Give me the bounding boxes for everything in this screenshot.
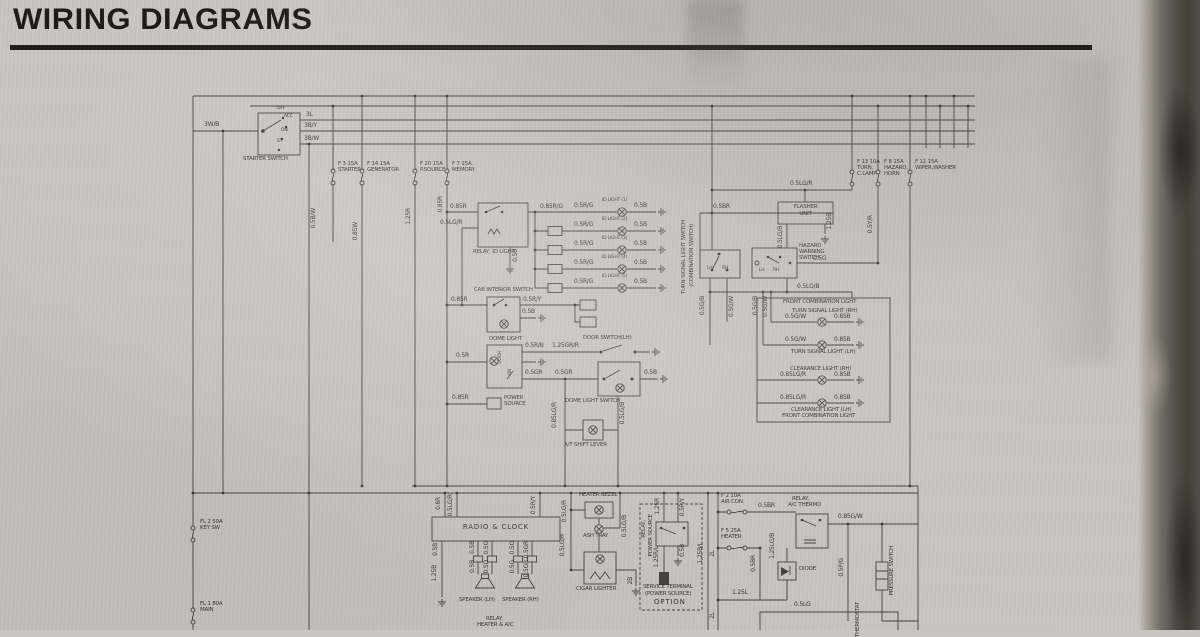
wire-label: 0.5G/W bbox=[729, 296, 735, 317]
wire-label: 1.25R bbox=[406, 208, 412, 225]
wire-label: 0.5B bbox=[513, 249, 519, 262]
wire-label: 0.85R bbox=[438, 196, 444, 213]
wire-label: 0.5R/G bbox=[574, 260, 593, 266]
wire-label: 0.85B bbox=[834, 337, 850, 343]
fuse-name: KEY SW bbox=[200, 526, 220, 532]
component-label: OPTION bbox=[654, 599, 686, 607]
wire-label: 2L bbox=[710, 550, 716, 557]
fuse-name: GENERATOR bbox=[367, 168, 399, 174]
switch-position-label: ON bbox=[281, 129, 288, 134]
component-label: THERMOSTAT bbox=[856, 602, 862, 637]
wire-label: 0.85B bbox=[834, 395, 850, 401]
component-label: DOOR SWITCH(LH) bbox=[583, 336, 632, 342]
component-label: FRONT COMBINATION LIGHT bbox=[783, 300, 856, 306]
component-label: HEATER BEZEL bbox=[579, 493, 618, 499]
wire-label: 0.85R bbox=[451, 297, 468, 303]
page-edge-shadow bbox=[1138, 0, 1200, 630]
component-label: PRESSURE SWITCH bbox=[890, 546, 896, 595]
wire-label: 0.5G/B bbox=[700, 296, 706, 315]
component-label: A/C THERMO bbox=[788, 503, 821, 509]
wire-label: 0.5B bbox=[634, 222, 647, 228]
wire-label: 0.5B bbox=[644, 370, 657, 376]
wire-label: 3B/W bbox=[304, 136, 319, 142]
wire-label: 0.5B/W bbox=[311, 208, 317, 228]
wire-label: 1.25GR/R bbox=[552, 343, 579, 349]
wire-label: 0.85G/W bbox=[838, 514, 863, 520]
wire-label: 2L bbox=[710, 612, 716, 619]
component-label: TURN SIGNAL LIGHT (LH) bbox=[791, 350, 855, 356]
fuse-name: P.SOURCE bbox=[420, 168, 445, 174]
fuse-name: HAZARD, HORN bbox=[884, 166, 910, 178]
wire-label: 0.5B bbox=[470, 541, 476, 554]
wire-label: 0.85W bbox=[353, 222, 359, 240]
wire-label: 0.5P/G bbox=[839, 558, 845, 577]
wire-label: 1.25LG/B bbox=[770, 533, 776, 559]
wire-label: 0.85LG/R bbox=[780, 395, 806, 401]
wire-label: 0.5BR bbox=[751, 555, 757, 572]
wire-label: 0.5R/G bbox=[574, 203, 593, 209]
component-label: DOME LIGHT bbox=[489, 337, 522, 343]
component-label: ID LIGHT (1) bbox=[602, 199, 627, 204]
component-label: STARTER SWITCH bbox=[243, 157, 288, 163]
wire-label: 0.5R/G bbox=[574, 241, 593, 247]
wire-label: 0.5GR bbox=[525, 370, 542, 376]
component-label: TURN SIGNAL LIGHT SWITCH bbox=[682, 220, 688, 294]
wire-label: 0.85LG/R bbox=[780, 372, 806, 378]
component-label: ID LIGHT (2) bbox=[602, 218, 627, 223]
terminal-label: RH bbox=[722, 267, 728, 272]
wire-label: 0.5GR bbox=[524, 560, 530, 577]
fuse-name: STARTER bbox=[338, 168, 361, 174]
wire-label: 0.5O bbox=[484, 560, 490, 573]
wire-label: 0.5BR bbox=[713, 204, 730, 210]
wire-label: 3L bbox=[306, 112, 313, 118]
wire-label: 0.5O bbox=[484, 541, 490, 554]
wire-label: 0.5R/Y bbox=[523, 297, 541, 303]
component-label: ID LIGHT (4) bbox=[602, 256, 627, 261]
wire-label: 0.5B bbox=[433, 543, 439, 556]
wire-label: 0.5R/Y bbox=[531, 496, 537, 514]
fuse-name: AIR CON bbox=[721, 500, 743, 506]
wire-label: 0.5GR bbox=[524, 541, 530, 558]
wire-label: 1.25B bbox=[432, 565, 438, 581]
wire-label: 0.5LG bbox=[794, 602, 811, 608]
wire-label: 0.5B bbox=[634, 203, 647, 209]
wire-label: 0.5LG/R bbox=[560, 534, 566, 556]
component-label: RELAY, ID LIGHT bbox=[473, 250, 515, 256]
wire-label: 1.25B/L bbox=[698, 542, 704, 563]
wire-label: 0.5B bbox=[634, 279, 647, 285]
fuse-name: MAIN bbox=[200, 608, 213, 614]
wire-label: 0.5R/G bbox=[574, 222, 593, 228]
wire-label: 0.5R/Y bbox=[680, 498, 686, 516]
wire-label: 0.85R bbox=[450, 204, 467, 210]
wire-label: 0.5BR bbox=[758, 503, 775, 509]
component-label: CAB INTERIOR SWITCH bbox=[474, 288, 533, 294]
wire-label: 0.5B bbox=[634, 260, 647, 266]
fuse-name: HEATER bbox=[721, 535, 741, 541]
component-label: ID LIGHT (3) bbox=[602, 237, 627, 242]
terminal-label: LH bbox=[707, 267, 713, 272]
switch-position-label: OFF bbox=[277, 107, 285, 112]
wire-label: 0.5G/W bbox=[763, 296, 769, 317]
wire-label: 0.5B bbox=[634, 241, 647, 247]
component-boxes bbox=[258, 113, 890, 610]
terminal-label: RH bbox=[773, 269, 779, 274]
wire-label: 0.5G bbox=[813, 256, 826, 262]
wire-label: 0.5G/W bbox=[785, 337, 806, 343]
wire-label: 0.5G bbox=[510, 560, 516, 573]
wire-label: 0.5G bbox=[510, 541, 516, 554]
wire-label: 1.25R bbox=[655, 498, 661, 515]
component-label: ASH TRAY bbox=[583, 534, 608, 540]
wire-label: 0.5G/B bbox=[753, 296, 759, 315]
wire-label: 0.85B bbox=[834, 372, 850, 378]
switch-position-label: ON bbox=[509, 369, 514, 376]
component-label: CIGAR LIGHTER bbox=[576, 587, 616, 593]
wire-label: 0.5GR bbox=[555, 370, 572, 376]
component-label: ID LIGHT (5) bbox=[602, 275, 627, 280]
wire-label: 0.5Y/R bbox=[868, 215, 874, 233]
wire-label: 0.6R bbox=[436, 497, 442, 510]
wire-label: 0.5LG/R bbox=[440, 220, 462, 226]
wire-label: 0.85LG/R bbox=[552, 402, 558, 428]
wire-label: 0.5B bbox=[680, 544, 686, 557]
wire-label: 0.5LG/R bbox=[448, 494, 454, 516]
wire-label: 0.5LG/B bbox=[778, 226, 784, 248]
wire-label: 0.5LG/B bbox=[797, 284, 819, 290]
wire-label: 1.25B bbox=[827, 213, 833, 229]
wire-label: 1.25R/L bbox=[654, 546, 660, 568]
component-label: SPEAKER (RH) bbox=[502, 598, 539, 604]
scanned-wiring-diagram-page: WIRING DIAGRAMS bbox=[0, 0, 1200, 630]
wire-label: 0.5R/B bbox=[525, 343, 544, 349]
wire-label: 3W/B bbox=[204, 122, 219, 128]
switch-position-label: ACC bbox=[284, 115, 293, 120]
scan-smudge bbox=[1040, 60, 1110, 360]
wire-label: 0.5LG/R bbox=[562, 500, 568, 522]
wire-label: 0.5LG/B bbox=[622, 515, 628, 537]
wire-label: 0.5B bbox=[470, 560, 476, 573]
fuse-name: TURN, C.LAMP bbox=[857, 166, 883, 178]
fuse-name: MEMORY bbox=[452, 168, 475, 174]
wire-label: 3B/Y bbox=[304, 123, 317, 129]
wire-label: 0.85R bbox=[452, 395, 469, 401]
scan-smudge bbox=[688, 0, 744, 92]
wire-label: 2B bbox=[628, 577, 634, 585]
component-label: UNIT bbox=[778, 212, 833, 218]
component-label: SPEAKER (LH) bbox=[459, 598, 495, 604]
component-label: POWER SOURCE bbox=[504, 396, 534, 408]
wire-label: 0.5G/W bbox=[785, 314, 806, 320]
switch-position-label: DOOR bbox=[499, 351, 504, 364]
component-label: A/T SHIFT LEVER bbox=[564, 443, 607, 449]
wire-label: 0.5R bbox=[456, 353, 469, 359]
terminal-label: LH bbox=[759, 269, 765, 274]
component-label: FRONT COMBINATION LIGHT bbox=[782, 414, 855, 420]
wire-label: 0.5LG/B bbox=[620, 402, 626, 424]
component-label: HEATER & A/C bbox=[477, 623, 513, 629]
component-label: DOME LIGHT SWITCH bbox=[565, 399, 620, 405]
wire-label: 0.85R/G bbox=[540, 204, 563, 210]
component-label: DIODE bbox=[799, 567, 816, 573]
fuse-name: WIPER,WASHER bbox=[915, 166, 956, 172]
wire-label: 0.85B bbox=[834, 314, 850, 320]
wire-label: 0.5R/G bbox=[574, 279, 593, 285]
wire-label: 0.5B bbox=[522, 309, 535, 315]
component-label: RADIO & CLOCK bbox=[432, 524, 560, 532]
switch-position-label: ST bbox=[277, 140, 282, 145]
component-label: (COMBINATION SWITCH) bbox=[690, 224, 696, 287]
wire-label: 0.5LG/R bbox=[790, 181, 812, 187]
wire-label: 1.25L bbox=[732, 590, 748, 596]
